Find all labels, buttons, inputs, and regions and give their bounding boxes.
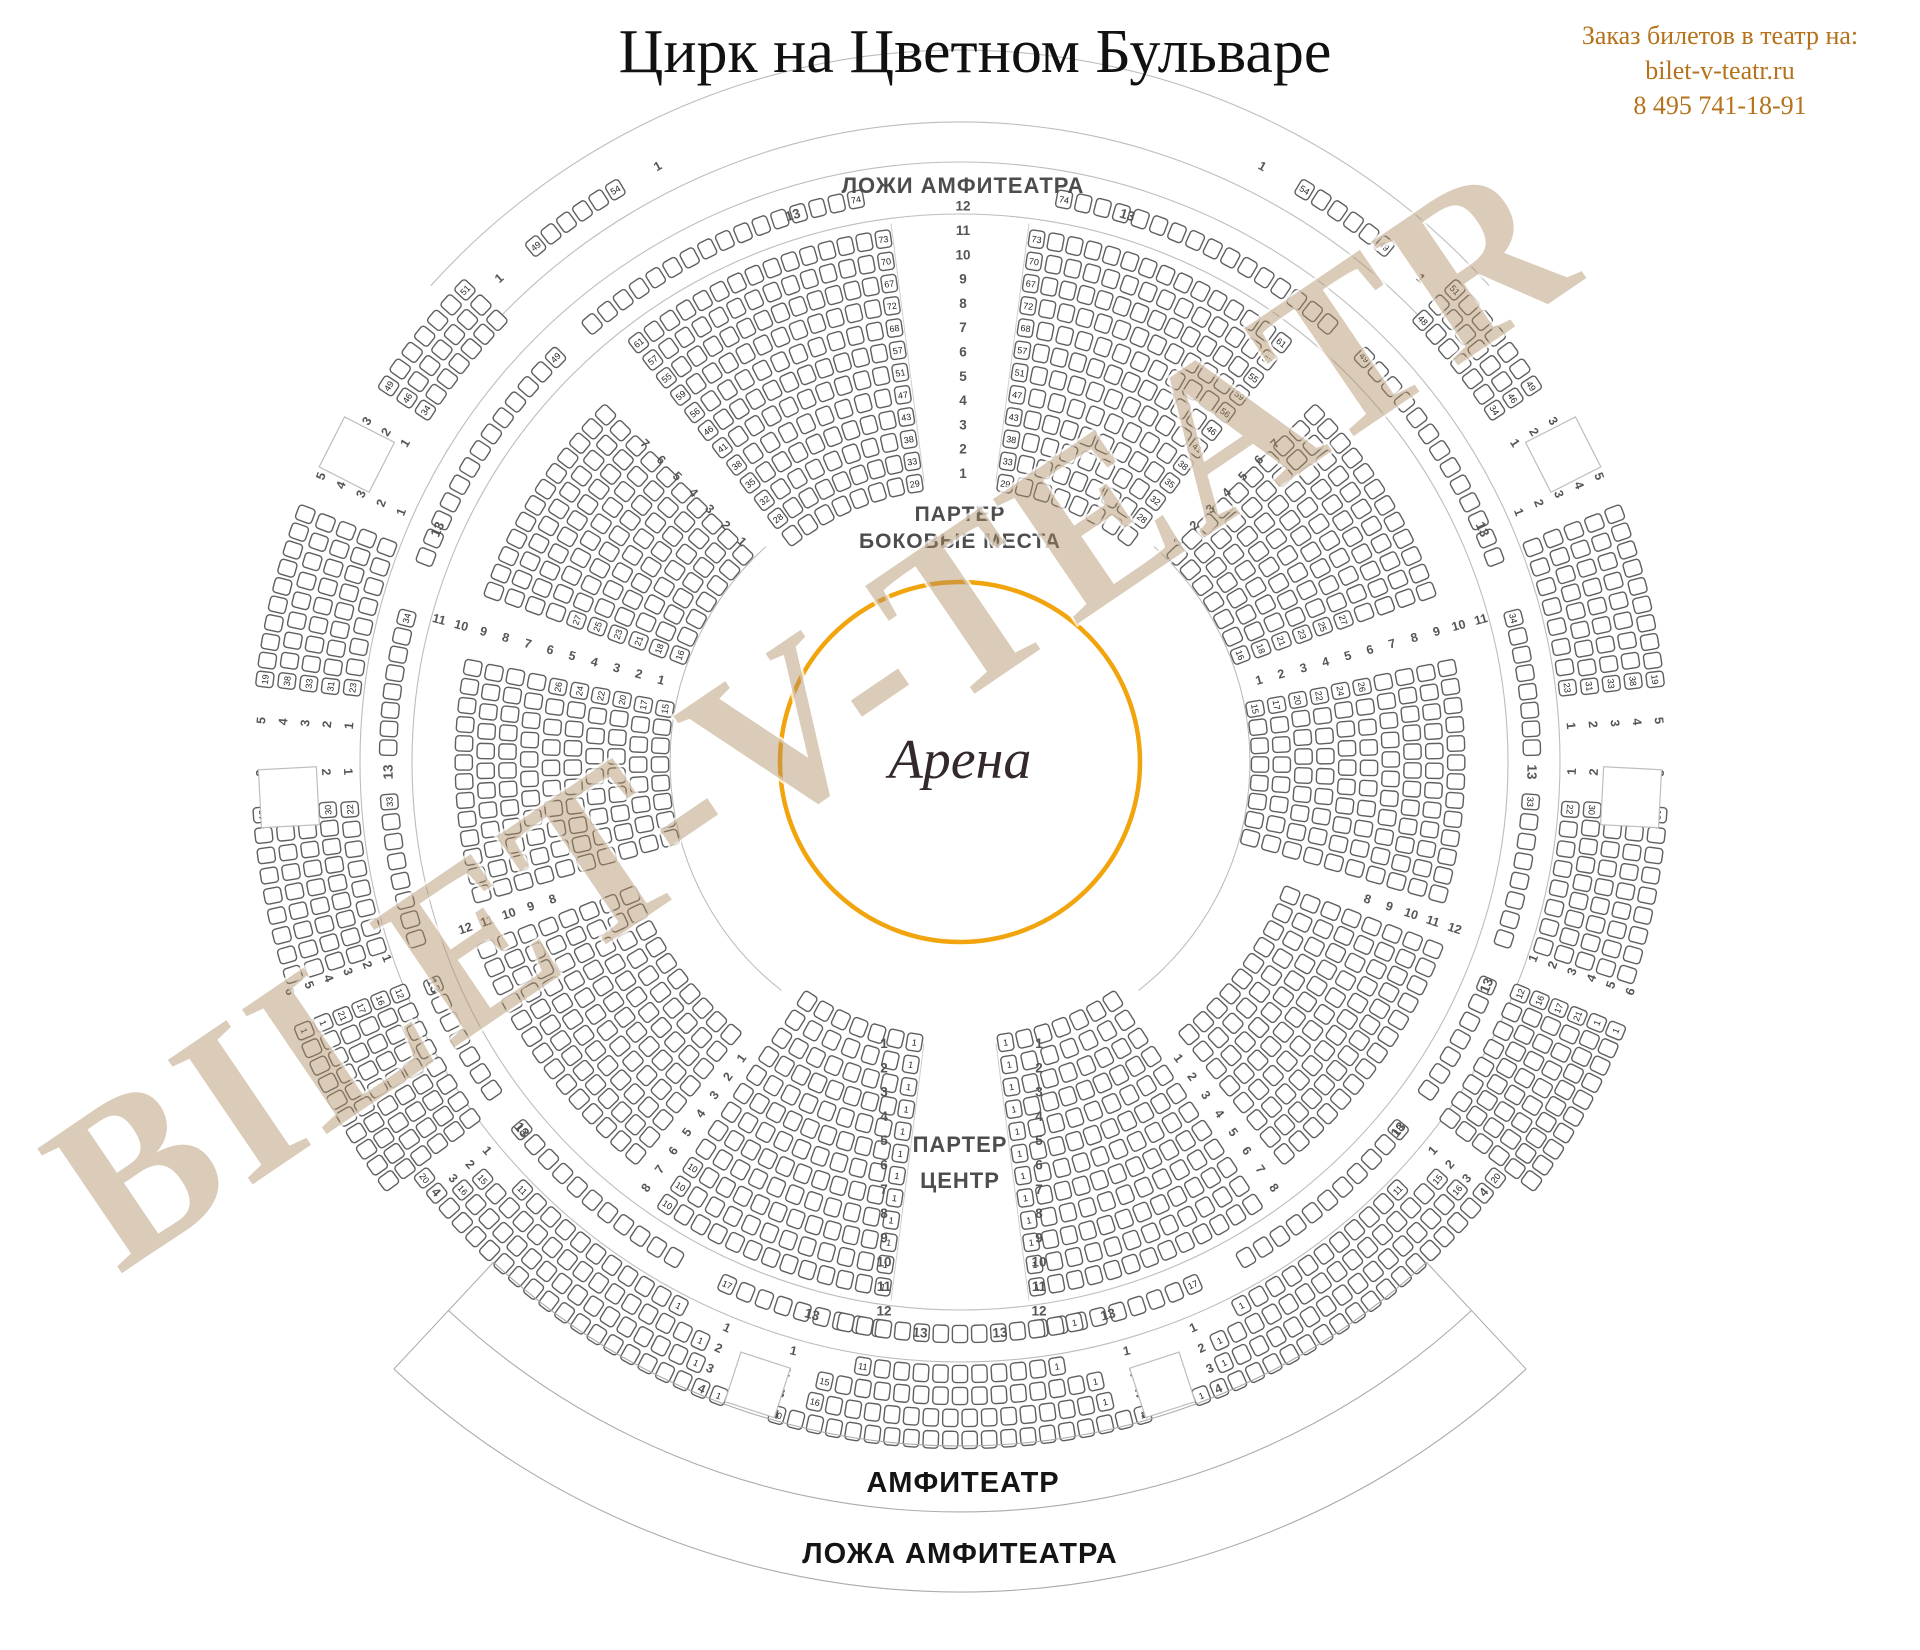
seat[interactable] (1149, 1194, 1170, 1216)
seat[interactable] (745, 388, 767, 410)
seat[interactable] (291, 591, 311, 610)
seat[interactable] (1542, 597, 1562, 616)
seat[interactable] (1032, 344, 1050, 364)
seat[interactable] (1400, 546, 1422, 567)
seat[interactable] (1310, 1272, 1332, 1295)
seat[interactable] (1047, 1274, 1065, 1294)
seat[interactable] (690, 1213, 712, 1235)
seat[interactable] (1244, 811, 1264, 829)
seat[interactable] (748, 1168, 769, 1190)
seat[interactable] (1523, 740, 1541, 756)
seat[interactable] (1447, 774, 1465, 790)
seat[interactable] (1278, 1293, 1300, 1316)
seat[interactable] (1433, 866, 1453, 885)
seat[interactable] (707, 1119, 729, 1142)
seat[interactable] (1078, 1029, 1099, 1051)
seat[interactable] (1373, 673, 1393, 691)
seat[interactable] (323, 558, 344, 578)
seat[interactable] (1403, 725, 1421, 741)
seat[interactable] (780, 251, 800, 272)
seat[interactable] (1360, 760, 1377, 775)
seat[interactable] (813, 1000, 835, 1022)
seat[interactable] (1112, 296, 1132, 317)
seat[interactable] (754, 1289, 774, 1310)
seat[interactable] (1285, 1213, 1307, 1236)
seat[interactable] (1401, 706, 1420, 723)
seat[interactable] (1186, 1149, 1208, 1172)
seat[interactable] (1597, 1038, 1619, 1059)
seat[interactable] (545, 602, 566, 622)
seat[interactable] (363, 577, 384, 597)
seat[interactable] (1240, 829, 1260, 848)
seat[interactable] (1422, 703, 1441, 720)
seat[interactable] (1499, 1128, 1522, 1150)
seat[interactable] (768, 1201, 789, 1223)
seat[interactable] (1420, 684, 1439, 702)
seat[interactable] (972, 1387, 988, 1405)
seat[interactable] (567, 1284, 589, 1307)
seat[interactable] (1107, 1163, 1127, 1184)
seat[interactable] (596, 1019, 619, 1042)
seat[interactable] (744, 414, 766, 437)
seat[interactable] (817, 1265, 836, 1285)
seat[interactable] (1572, 1089, 1594, 1111)
seat[interactable] (1065, 1247, 1084, 1267)
seat[interactable] (1100, 1118, 1121, 1140)
seat[interactable] (530, 360, 553, 383)
seat[interactable] (1423, 802, 1442, 819)
seat[interactable] (603, 1334, 625, 1357)
seat[interactable] (1040, 1045, 1060, 1066)
seat[interactable] (796, 364, 816, 386)
seat[interactable] (714, 230, 735, 252)
seat[interactable] (588, 189, 610, 212)
seat[interactable] (1581, 1072, 1603, 1093)
seat[interactable] (1424, 723, 1442, 739)
seat[interactable] (1159, 1214, 1180, 1236)
seat[interactable] (1272, 737, 1290, 753)
seat[interactable] (853, 370, 872, 390)
seat[interactable] (1378, 809, 1397, 826)
seat[interactable] (862, 277, 880, 297)
seat[interactable] (1415, 581, 1436, 601)
seat[interactable] (1503, 1084, 1526, 1106)
seat[interactable] (866, 322, 884, 342)
seat[interactable] (657, 496, 680, 519)
seat[interactable] (1346, 583, 1368, 604)
seat[interactable] (1263, 612, 1285, 633)
seat[interactable] (1009, 1322, 1026, 1341)
seat[interactable] (401, 341, 424, 363)
seat[interactable] (709, 280, 730, 302)
seat[interactable] (821, 1029, 842, 1051)
seat[interactable] (867, 459, 886, 480)
seat[interactable] (1422, 939, 1444, 959)
seat[interactable] (1540, 1016, 1562, 1037)
seat[interactable] (1157, 1239, 1178, 1261)
seat[interactable] (610, 1130, 633, 1153)
seat[interactable] (1045, 1251, 1063, 1271)
seat[interactable] (254, 827, 273, 844)
seat[interactable] (806, 290, 826, 311)
seat[interactable] (1251, 738, 1269, 754)
seat[interactable] (1293, 786, 1312, 803)
seat[interactable] (1403, 781, 1421, 797)
seat[interactable] (635, 1064, 658, 1087)
seat[interactable] (861, 1229, 879, 1249)
seat[interactable] (596, 300, 619, 323)
seat[interactable] (418, 354, 441, 376)
seat[interactable] (1291, 912, 1313, 933)
seat[interactable] (742, 1239, 763, 1261)
seat[interactable] (854, 393, 873, 414)
seat[interactable] (1428, 884, 1449, 903)
seat[interactable] (537, 1148, 560, 1171)
seat[interactable] (1282, 930, 1304, 952)
seat[interactable] (1543, 528, 1564, 548)
seat[interactable] (833, 375, 853, 396)
seat[interactable] (1334, 970, 1356, 992)
seat[interactable] (264, 614, 284, 632)
seat[interactable] (849, 488, 869, 509)
seat[interactable] (1636, 614, 1656, 632)
seat[interactable] (834, 398, 854, 419)
seat[interactable] (380, 721, 398, 737)
seat[interactable] (1582, 577, 1603, 596)
seat[interactable] (1248, 1285, 1270, 1307)
seat[interactable] (788, 319, 808, 340)
seat[interactable] (1577, 659, 1596, 677)
seat[interactable] (1149, 215, 1169, 236)
seat[interactable] (893, 1384, 910, 1403)
seat[interactable] (1644, 847, 1663, 864)
seat[interactable] (1337, 565, 1359, 586)
seat[interactable] (545, 698, 564, 715)
seat[interactable] (479, 703, 498, 720)
seat[interactable] (263, 886, 283, 904)
seat[interactable] (1276, 1050, 1299, 1073)
seat[interactable] (1084, 1242, 1103, 1263)
seat[interactable] (855, 1274, 873, 1294)
seat[interactable] (1299, 894, 1321, 915)
seat[interactable] (708, 306, 730, 328)
seat[interactable] (823, 426, 843, 448)
seat[interactable] (1010, 1362, 1027, 1381)
seat[interactable] (799, 245, 819, 266)
seat[interactable] (1055, 326, 1074, 346)
seat[interactable] (1063, 259, 1082, 279)
seat[interactable] (389, 358, 412, 380)
seat[interactable] (778, 396, 799, 418)
seat[interactable] (894, 1322, 911, 1341)
seat[interactable] (1086, 1000, 1108, 1022)
seat[interactable] (581, 312, 604, 335)
seat[interactable] (761, 1247, 781, 1268)
seat[interactable] (590, 513, 613, 535)
seat[interactable] (1408, 563, 1430, 584)
seat[interactable] (1392, 528, 1414, 549)
seat[interactable] (644, 512, 667, 535)
seat[interactable] (1347, 1272, 1370, 1295)
seat[interactable] (1324, 942, 1346, 963)
seat[interactable] (556, 526, 578, 548)
seat[interactable] (458, 697, 477, 714)
seat[interactable] (1202, 238, 1223, 260)
seat[interactable] (609, 419, 632, 442)
seat[interactable] (811, 1170, 831, 1191)
seat[interactable] (1220, 247, 1242, 269)
seat[interactable] (650, 1016, 673, 1039)
seat[interactable] (1622, 844, 1641, 861)
seat[interactable] (1249, 719, 1268, 736)
seat[interactable] (1121, 1254, 1141, 1275)
seat[interactable] (1508, 627, 1528, 646)
seat[interactable] (1381, 924, 1403, 944)
seat[interactable] (460, 678, 479, 696)
seat[interactable] (599, 1305, 621, 1328)
seat[interactable] (1266, 815, 1286, 833)
seat[interactable] (654, 1361, 675, 1383)
seat[interactable] (469, 294, 492, 317)
seat[interactable] (1276, 589, 1298, 610)
seat[interactable] (1370, 847, 1390, 866)
seat[interactable] (1096, 1020, 1118, 1042)
seat[interactable] (1342, 1073, 1365, 1096)
seat[interactable] (1074, 331, 1093, 352)
seat[interactable] (1573, 874, 1593, 892)
seat[interactable] (1380, 712, 1399, 729)
seat[interactable] (1365, 959, 1387, 980)
seat[interactable] (629, 1225, 651, 1248)
seat[interactable] (885, 455, 904, 475)
seat[interactable] (786, 1208, 806, 1229)
seat[interactable] (1083, 240, 1102, 260)
seat[interactable] (1483, 1038, 1505, 1060)
seat[interactable] (1067, 1375, 1085, 1395)
seat[interactable] (645, 266, 667, 289)
seat[interactable] (1078, 1220, 1097, 1241)
seat[interactable] (1359, 780, 1377, 796)
seat[interactable] (855, 232, 873, 252)
seat[interactable] (515, 511, 537, 533)
seat[interactable] (1286, 823, 1306, 841)
seat[interactable] (329, 539, 350, 559)
seat[interactable] (1472, 1056, 1495, 1078)
seat[interactable] (456, 308, 479, 331)
seat[interactable] (878, 410, 896, 430)
seat[interactable] (1301, 1019, 1324, 1042)
seat[interactable] (1315, 959, 1337, 981)
seat[interactable] (1579, 838, 1598, 855)
seat[interactable] (1517, 833, 1536, 850)
seat[interactable] (1092, 1072, 1113, 1094)
seat[interactable] (1065, 1131, 1085, 1152)
seat[interactable] (1161, 1112, 1183, 1135)
seat[interactable] (692, 1057, 715, 1080)
seat[interactable] (880, 433, 899, 453)
seat[interactable] (620, 1343, 642, 1365)
seat[interactable] (463, 659, 483, 677)
seat[interactable] (317, 577, 338, 596)
seat[interactable] (504, 391, 527, 414)
seat[interactable] (527, 673, 547, 691)
seat[interactable] (353, 617, 373, 636)
seat[interactable] (637, 1303, 659, 1325)
seat[interactable] (1297, 1254, 1319, 1277)
seat[interactable] (706, 574, 729, 596)
seat[interactable] (1590, 896, 1610, 915)
seat[interactable] (1446, 716, 1464, 732)
seat[interactable] (1167, 1185, 1188, 1207)
seat[interactable] (1359, 560, 1381, 581)
seat[interactable] (613, 480, 636, 503)
seat[interactable] (499, 744, 517, 760)
seat[interactable] (1076, 1055, 1097, 1077)
seat[interactable] (730, 1159, 752, 1181)
seat[interactable] (1059, 1037, 1079, 1058)
seat[interactable] (1243, 621, 1265, 642)
seat[interactable] (1346, 1162, 1369, 1185)
seat[interactable] (483, 581, 504, 601)
seat[interactable] (302, 655, 321, 673)
seat[interactable] (1082, 263, 1101, 284)
seat[interactable] (1071, 1152, 1091, 1173)
seat[interactable] (503, 687, 522, 705)
seat[interactable] (1585, 915, 1605, 934)
seat[interactable] (1449, 1028, 1471, 1050)
seat[interactable] (874, 1382, 891, 1401)
seat[interactable] (841, 420, 861, 441)
seat[interactable] (1312, 808, 1331, 826)
seat[interactable] (1089, 1170, 1109, 1191)
seat[interactable] (1551, 638, 1571, 656)
seat[interactable] (570, 465, 593, 487)
seat[interactable] (382, 813, 401, 830)
seat[interactable] (1576, 856, 1595, 874)
seat[interactable] (1521, 1095, 1544, 1117)
seat[interactable] (1115, 1410, 1134, 1430)
seat[interactable] (613, 1213, 635, 1236)
seat[interactable] (1350, 839, 1370, 857)
seat[interactable] (1101, 269, 1121, 290)
seat[interactable] (426, 309, 449, 332)
seat[interactable] (326, 640, 346, 658)
seat[interactable] (1596, 636, 1616, 654)
seat[interactable] (1331, 1176, 1354, 1199)
seat[interactable] (991, 1386, 1007, 1404)
seat[interactable] (261, 633, 281, 651)
seat[interactable] (716, 379, 738, 402)
seat[interactable] (763, 1074, 785, 1096)
seat[interactable] (440, 293, 463, 316)
seat[interactable] (1488, 1144, 1511, 1166)
seat[interactable] (1333, 925, 1355, 946)
seat[interactable] (1241, 1193, 1263, 1216)
seat[interactable] (815, 381, 835, 402)
seat[interactable] (770, 478, 792, 501)
seat[interactable] (1394, 948, 1416, 969)
seat[interactable] (1574, 640, 1594, 658)
seat[interactable] (1426, 743, 1444, 759)
seat[interactable] (1203, 1138, 1225, 1161)
seat[interactable] (673, 1204, 695, 1227)
seat[interactable] (991, 1364, 1007, 1382)
seat[interactable] (1010, 1384, 1027, 1403)
seat[interactable] (589, 558, 611, 580)
seat[interactable] (701, 362, 723, 385)
seat[interactable] (1554, 945, 1575, 965)
seat[interactable] (1559, 821, 1578, 838)
seat[interactable] (815, 405, 835, 427)
seat[interactable] (788, 1037, 810, 1059)
seat[interactable] (430, 339, 453, 362)
seat[interactable] (1164, 1281, 1185, 1303)
seat[interactable] (478, 723, 496, 739)
seat[interactable] (569, 547, 591, 569)
seat[interactable] (1531, 1033, 1553, 1054)
seat[interactable] (651, 1285, 673, 1307)
seat[interactable] (1272, 986, 1295, 1008)
seat[interactable] (455, 774, 473, 790)
seat[interactable] (1412, 859, 1432, 878)
seat[interactable] (1340, 908, 1362, 929)
seat[interactable] (1133, 1176, 1154, 1198)
seat[interactable] (555, 1073, 578, 1096)
seat[interactable] (1382, 771, 1400, 787)
seat[interactable] (1052, 1158, 1071, 1178)
seat[interactable] (1102, 245, 1122, 266)
seat[interactable] (822, 450, 843, 472)
seat[interactable] (1345, 859, 1366, 878)
seat[interactable] (296, 571, 317, 590)
seat[interactable] (1522, 721, 1540, 737)
seat[interactable] (1398, 818, 1417, 835)
seat[interactable] (1398, 687, 1417, 705)
seat[interactable] (588, 1272, 610, 1295)
seat[interactable] (1020, 1405, 1037, 1424)
seat[interactable] (687, 1186, 709, 1209)
seat[interactable] (1621, 652, 1640, 670)
seat[interactable] (1381, 732, 1399, 748)
seat[interactable] (1315, 788, 1334, 805)
seat[interactable] (1111, 319, 1131, 340)
seat[interactable] (1058, 1062, 1078, 1083)
seat[interactable] (1354, 820, 1373, 838)
seat[interactable] (859, 415, 878, 436)
seat[interactable] (1315, 1295, 1337, 1318)
seat[interactable] (731, 544, 754, 567)
seat[interactable] (1374, 828, 1394, 846)
seat[interactable] (753, 309, 774, 331)
seat[interactable] (784, 1009, 806, 1032)
seat[interactable] (1318, 530, 1341, 552)
seat[interactable] (1514, 852, 1534, 870)
seat[interactable] (1607, 920, 1627, 939)
seat[interactable] (1059, 1202, 1078, 1222)
seat[interactable] (1353, 602, 1374, 622)
seat[interactable] (1048, 1379, 1066, 1398)
seat[interactable] (566, 1176, 589, 1199)
seat[interactable] (1357, 800, 1376, 817)
seat[interactable] (415, 547, 437, 567)
seat[interactable] (1619, 863, 1638, 881)
seat[interactable] (1075, 1079, 1095, 1100)
seat[interactable] (1138, 257, 1158, 278)
seat[interactable] (981, 1408, 997, 1426)
seat[interactable] (334, 602, 354, 621)
seat[interactable] (1289, 1035, 1312, 1058)
seat[interactable] (715, 1176, 737, 1198)
